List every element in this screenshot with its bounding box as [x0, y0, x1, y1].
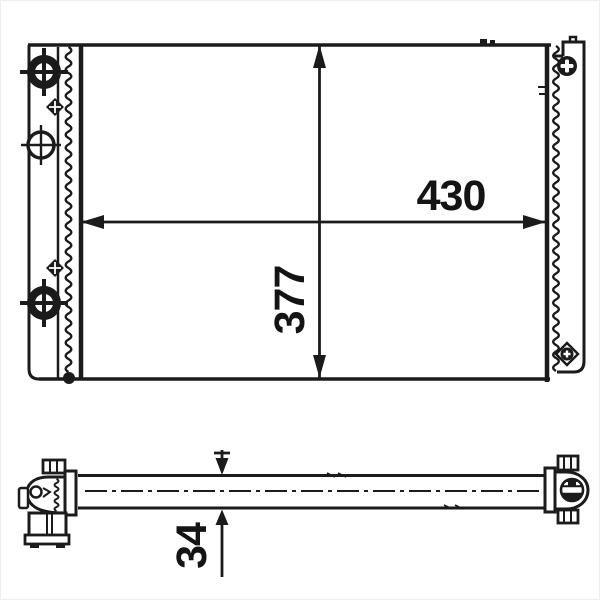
- arrowhead-down-icon: [216, 458, 229, 475]
- fin-edge-end: [63, 372, 75, 384]
- radiator-side-view: [19, 456, 588, 548]
- filler-mark: [490, 40, 495, 44]
- pin-upper: [46, 98, 64, 116]
- pipe-opening: [31, 487, 42, 498]
- mounting-grommet-bottom: [20, 279, 68, 327]
- pin-lower: [46, 259, 64, 277]
- radiator-dimension-diagram: 430 377: [1, 1, 600, 600]
- top-tab: [43, 460, 65, 473]
- mounting-hole-cross: [21, 125, 61, 165]
- bottom-tab: [558, 510, 578, 523]
- dimension-width: 430: [81, 172, 546, 229]
- mounting-grommet-top: [20, 48, 68, 96]
- technical-drawing-page: 430 377: [0, 0, 600, 600]
- arrowhead-down-icon: [313, 355, 326, 378]
- tank-right-edge: [557, 56, 584, 372]
- arrowhead-up-icon: [313, 45, 326, 68]
- width-dimension-label: 430: [417, 172, 486, 220]
- arrowhead-right-icon: [523, 215, 546, 229]
- depth-top-tail: [214, 450, 230, 458]
- top-tab: [558, 456, 578, 470]
- base-plate: [25, 535, 69, 544]
- screw-side-right: [561, 479, 584, 501]
- height-dimension-label: 377: [266, 266, 314, 335]
- right-fin-edge: [553, 46, 559, 371]
- side-tab: [19, 488, 28, 508]
- depth-dimension-label: 34: [168, 522, 216, 569]
- arrowhead-up-icon: [216, 510, 229, 526]
- left-fin-edge: [66, 47, 72, 372]
- bracket-outer-line: [29, 45, 39, 379]
- arrowhead-left-icon: [81, 215, 104, 229]
- dimension-depth: 34: [168, 450, 230, 577]
- side-left-bracket: [19, 460, 76, 548]
- dimension-height: 377: [266, 45, 326, 378]
- side-right-bracket: [545, 456, 588, 523]
- screw-top-right: [557, 56, 577, 76]
- end-flange: [65, 471, 76, 515]
- filler-mark: [480, 39, 487, 44]
